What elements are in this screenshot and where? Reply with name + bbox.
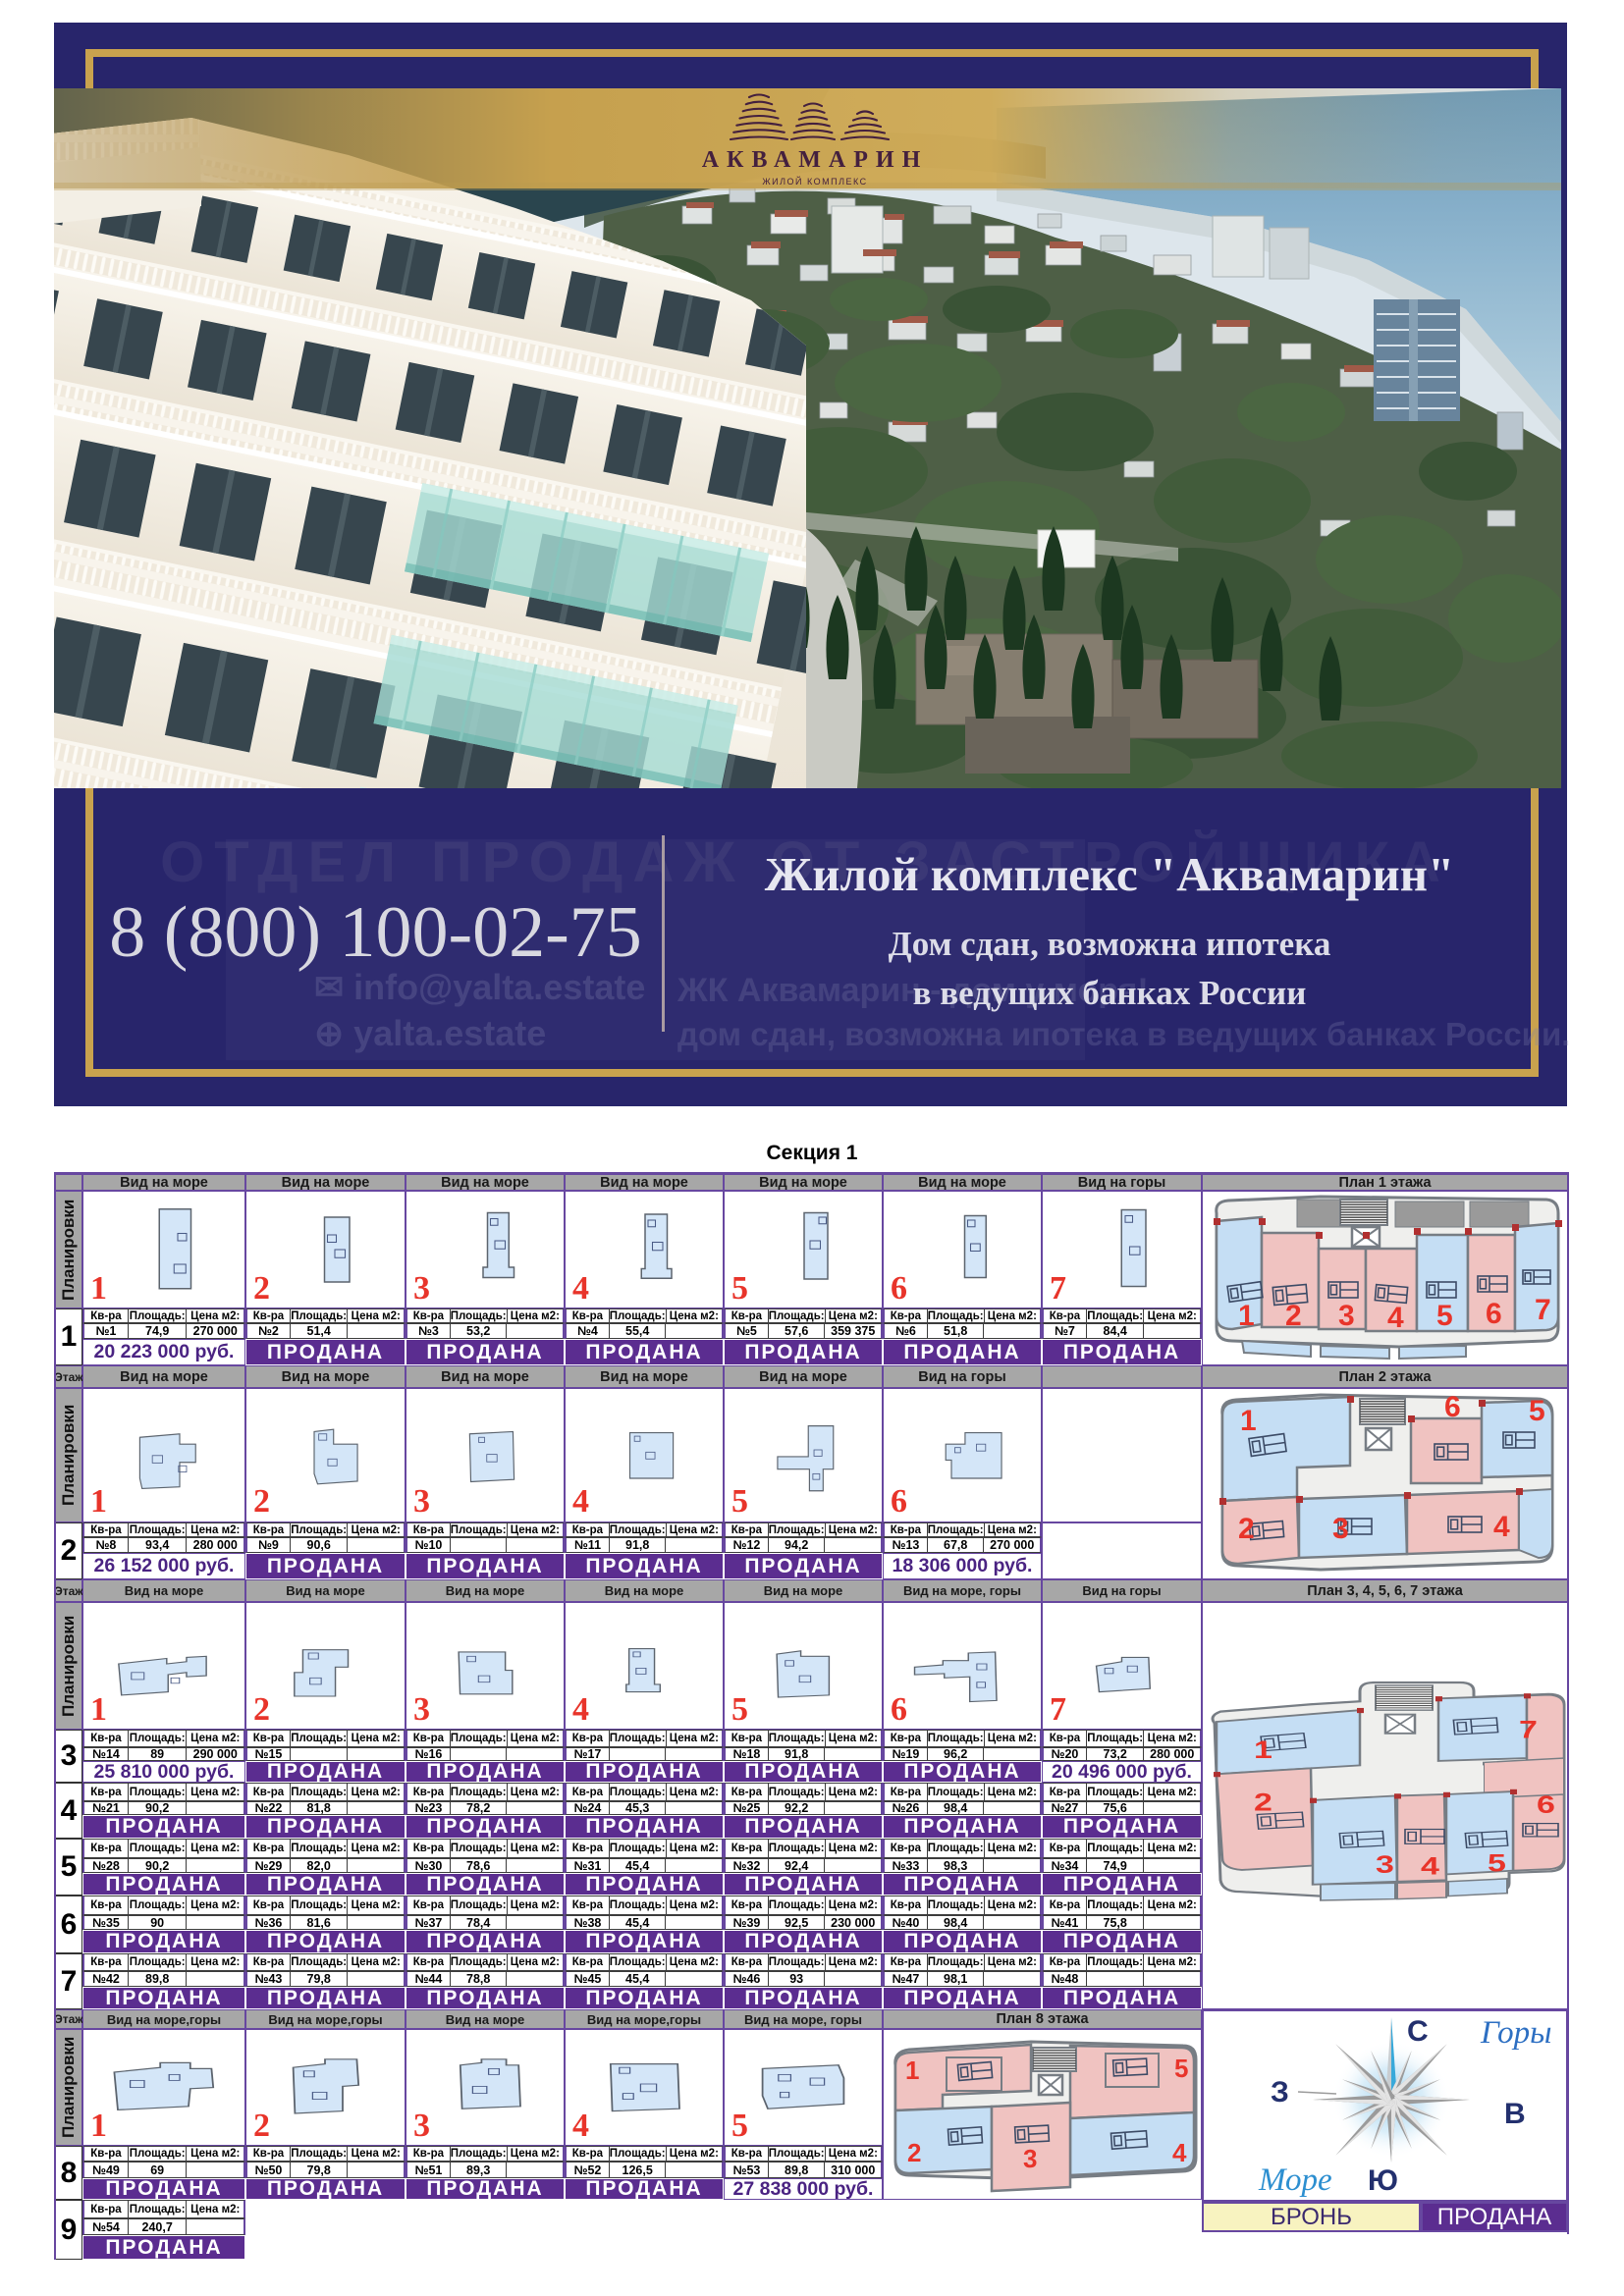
svg-text:Море: Море: [1258, 2163, 1332, 2198]
svg-text:3: 3: [1376, 1851, 1394, 1879]
svg-text:З: З: [1271, 2076, 1289, 2109]
svg-text:7: 7: [1519, 1716, 1538, 1743]
svg-text:5: 5: [1488, 1850, 1506, 1878]
svg-text:4: 4: [1172, 2138, 1187, 2167]
svg-text:1: 1: [905, 2056, 919, 2085]
svg-text:1: 1: [1240, 1405, 1257, 1437]
svg-text:1: 1: [1238, 1300, 1255, 1332]
svg-text:5: 5: [1529, 1395, 1545, 1427]
svg-text:Ю: Ю: [1368, 2164, 1398, 2197]
svg-text:2: 2: [1238, 1513, 1255, 1545]
svg-text:3: 3: [1023, 2144, 1037, 2173]
svg-text:5: 5: [1174, 2054, 1188, 2083]
svg-text:6: 6: [1444, 1391, 1461, 1423]
svg-text:1: 1: [1254, 1736, 1272, 1764]
svg-text:6: 6: [1537, 1791, 1555, 1819]
svg-text:7: 7: [1535, 1294, 1551, 1326]
svg-text:В: В: [1504, 2098, 1526, 2130]
svg-text:4: 4: [1421, 1853, 1439, 1881]
svg-text:3: 3: [1338, 1300, 1355, 1332]
svg-text:4: 4: [1387, 1302, 1404, 1334]
svg-text:2: 2: [907, 2138, 921, 2167]
svg-text:5: 5: [1436, 1300, 1453, 1332]
svg-text:2: 2: [1254, 1789, 1272, 1816]
svg-text:2: 2: [1285, 1300, 1302, 1332]
svg-text:Горы: Горы: [1480, 2015, 1551, 2051]
svg-text:4: 4: [1493, 1511, 1510, 1543]
svg-text:6: 6: [1486, 1298, 1502, 1330]
svg-text:С: С: [1407, 2015, 1429, 2048]
svg-text:3: 3: [1332, 1513, 1349, 1545]
